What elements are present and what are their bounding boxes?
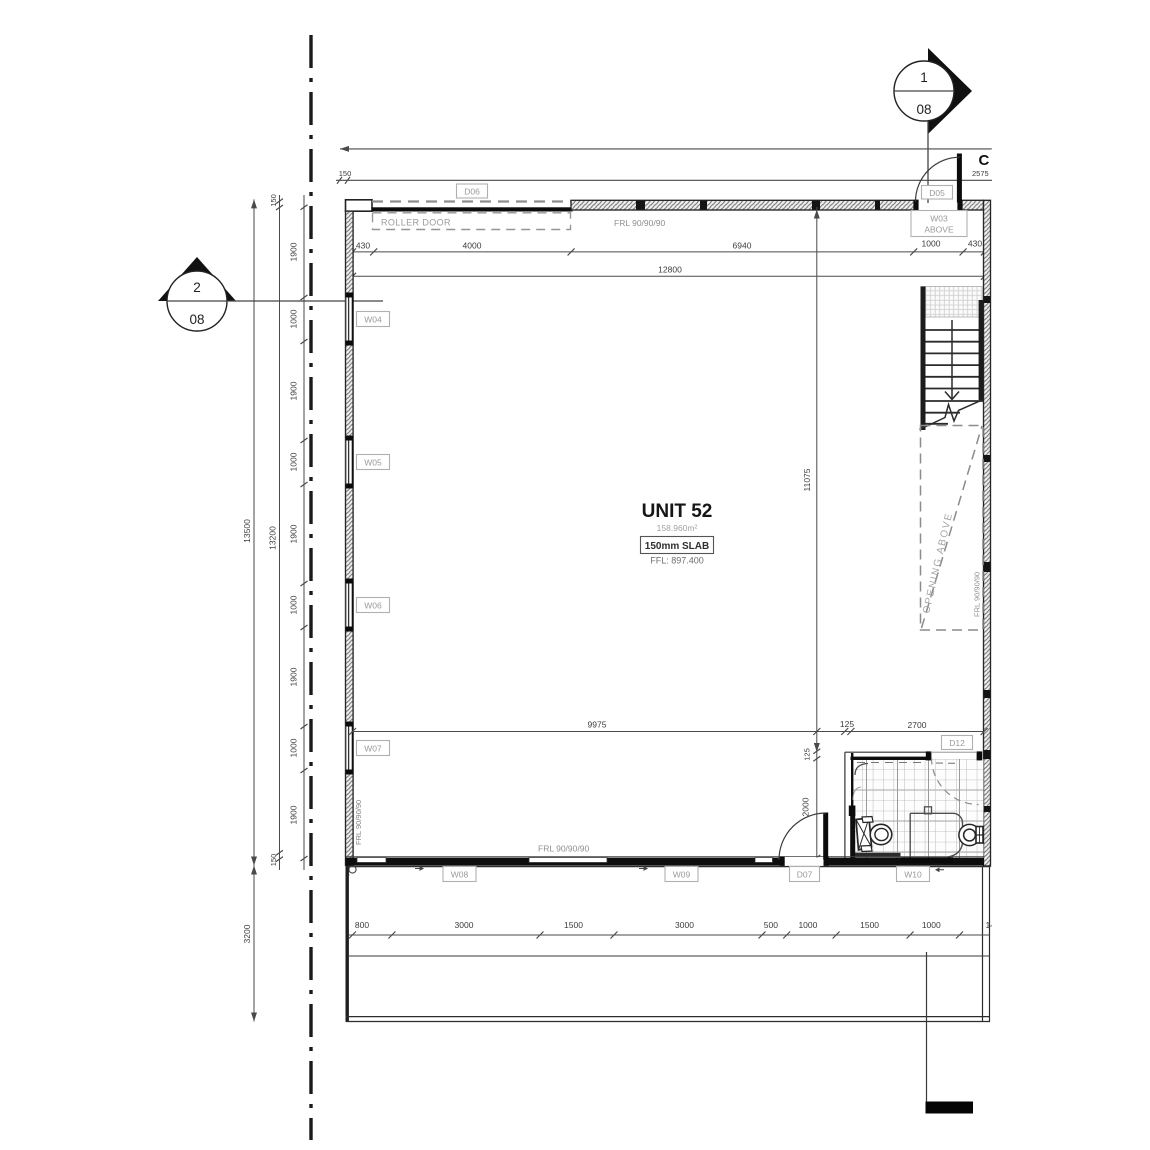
svg-text:4000: 4000 [463,241,482,251]
svg-text:1900: 1900 [289,381,299,400]
svg-text:2700: 2700 [908,720,927,730]
svg-text:FRL 90/90/90: FRL 90/90/90 [614,218,665,228]
svg-text:D06: D06 [464,187,480,197]
svg-text:11075: 11075 [802,468,812,491]
svg-text:08: 08 [189,312,204,327]
svg-text:1900: 1900 [289,667,299,686]
svg-text:150: 150 [269,194,278,207]
svg-text:2000: 2000 [801,797,811,816]
svg-text:W04: W04 [364,315,382,325]
svg-text:FRL 90/90/90: FRL 90/90/90 [354,800,363,845]
svg-text:D12: D12 [949,738,965,748]
svg-text:1900: 1900 [289,524,299,543]
svg-text:1500: 1500 [860,920,879,930]
svg-text:1000: 1000 [289,452,299,471]
svg-text:W07: W07 [364,744,382,754]
svg-text:UNIT 52: UNIT 52 [642,501,713,522]
svg-text:08: 08 [916,102,931,117]
svg-text:150: 150 [339,169,352,178]
svg-text:13500: 13500 [242,519,252,543]
svg-text:C: C [979,152,990,169]
svg-text:1000: 1000 [289,738,299,757]
svg-text:2: 2 [193,280,201,295]
svg-text:9975: 9975 [588,720,607,730]
svg-text:430: 430 [356,241,370,251]
svg-text:1500: 1500 [564,920,583,930]
svg-text:158.960m²: 158.960m² [657,523,698,533]
svg-text:3000: 3000 [455,920,474,930]
svg-text:800: 800 [355,920,369,930]
svg-text:1: 1 [920,70,928,85]
svg-text:1000: 1000 [922,920,941,930]
svg-text:W03: W03 [930,214,948,224]
svg-text:1000: 1000 [289,309,299,328]
svg-text:FRL 90/90/90: FRL 90/90/90 [538,844,589,854]
svg-text:3000: 3000 [675,920,694,930]
svg-text:FFL: 897.400: FFL: 897.400 [650,556,704,566]
svg-text:W09: W09 [673,870,691,880]
svg-text:1900: 1900 [289,242,299,261]
svg-text:ROLLER DOOR: ROLLER DOOR [381,218,451,228]
svg-text:12800: 12800 [658,265,682,275]
svg-text:FRL 90/90/90: FRL 90/90/90 [973,572,982,617]
svg-text:500: 500 [764,920,778,930]
svg-text:125: 125 [840,719,854,729]
svg-text:150mm SLAB: 150mm SLAB [645,541,709,552]
svg-text:3200: 3200 [242,924,252,943]
svg-text:6940: 6940 [733,241,752,251]
svg-text:W10: W10 [904,870,922,880]
svg-text:W08: W08 [451,870,469,880]
svg-text:1000: 1000 [289,595,299,614]
svg-text:13200: 13200 [268,526,278,550]
svg-text:D05: D05 [929,188,945,198]
svg-text:1000: 1000 [798,920,817,930]
svg-text:1900: 1900 [289,805,299,824]
svg-text:ABOVE: ABOVE [924,225,954,235]
svg-text:W05: W05 [364,458,382,468]
svg-text:430: 430 [968,239,982,249]
svg-text:W06: W06 [364,601,382,611]
svg-text:D07: D07 [797,870,813,880]
svg-text:1000: 1000 [922,239,941,249]
svg-text:150: 150 [269,854,278,867]
svg-text:2575: 2575 [972,169,989,178]
svg-text:125: 125 [803,748,812,761]
